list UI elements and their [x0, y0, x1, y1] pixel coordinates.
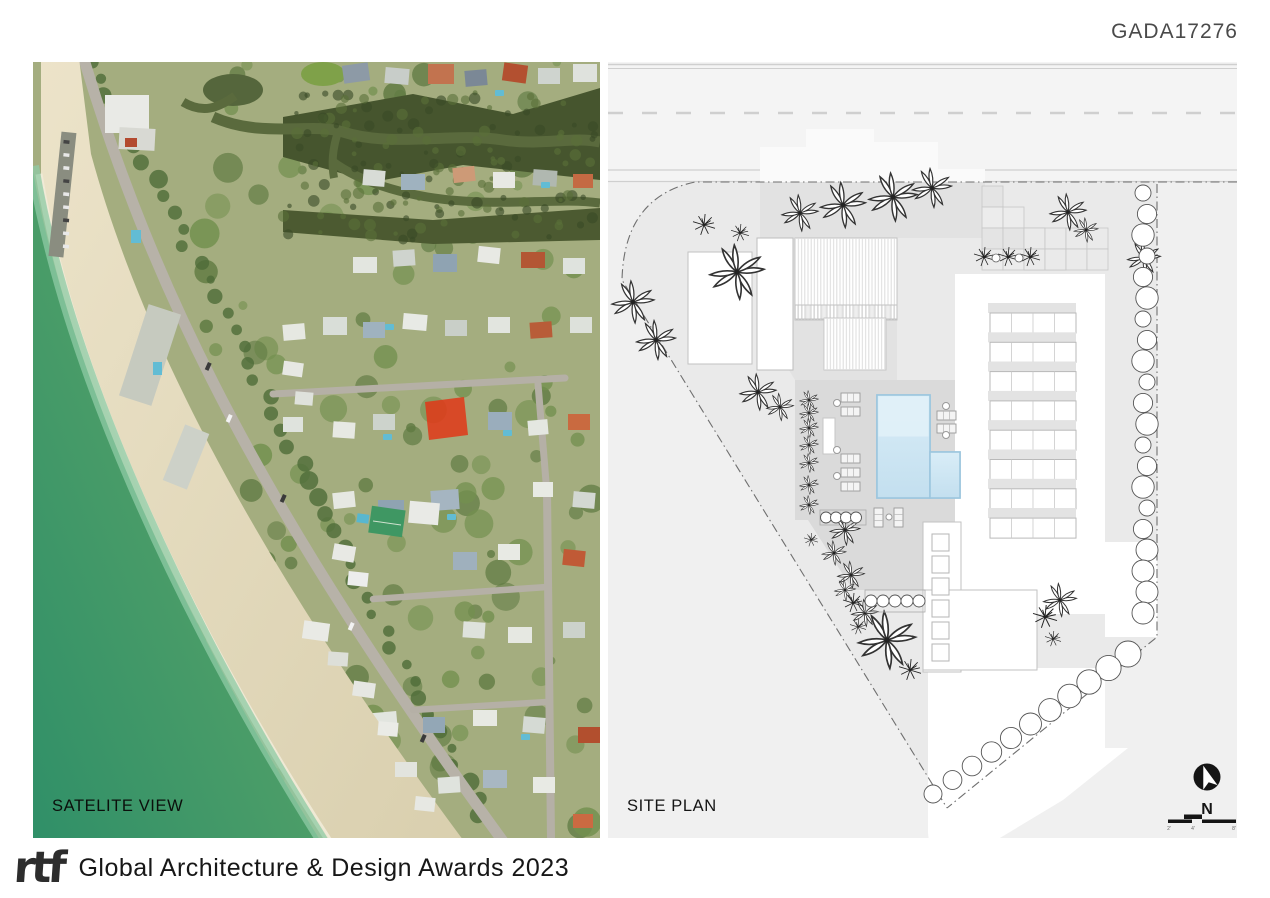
house-roof — [493, 172, 515, 188]
beachfront-building — [105, 95, 149, 133]
car — [63, 218, 69, 222]
unit-square — [932, 534, 949, 551]
building-deck-hatch — [795, 305, 897, 319]
house-roof — [323, 317, 347, 335]
unit-square — [932, 600, 949, 617]
bush — [943, 771, 962, 790]
beachfront-building — [294, 391, 313, 406]
rtf-logo: rtf — [12, 847, 63, 890]
house-roof — [402, 313, 427, 331]
lounge-chair — [937, 411, 956, 420]
carport-shadow — [988, 420, 1076, 430]
house-roof — [522, 716, 545, 734]
unit-square — [932, 556, 949, 573]
bush — [1137, 456, 1156, 475]
beachfront-building — [414, 796, 435, 812]
backyard-pool — [385, 324, 394, 330]
house-roof — [488, 317, 510, 333]
house-roof — [282, 323, 305, 341]
bush — [1137, 204, 1156, 223]
carport-shadow — [988, 362, 1076, 372]
presentation-board: GADA17276 — [0, 0, 1270, 898]
house-roof — [521, 252, 545, 268]
site-plan-panel: N 2' 4' 8' SITE PLAN — [608, 62, 1237, 838]
unit-square — [932, 578, 949, 595]
site-plan-label: SITE PLAN — [627, 797, 717, 816]
backyard-pool — [541, 182, 550, 188]
motel-pool — [131, 230, 141, 243]
bush — [1139, 374, 1155, 390]
house-roof — [538, 68, 560, 84]
house-roof — [332, 421, 355, 438]
bush — [1136, 287, 1158, 309]
house-roof — [563, 622, 585, 638]
carport-shadow — [988, 508, 1076, 518]
beachfront-building — [377, 721, 398, 737]
bush — [1135, 311, 1151, 327]
house-roof — [401, 174, 425, 190]
beachfront-building — [347, 571, 368, 587]
house-roof — [363, 322, 385, 338]
building-tower — [757, 238, 793, 370]
backyard-pool — [447, 514, 456, 520]
house-roof — [477, 246, 501, 264]
bush — [1132, 476, 1154, 498]
house-roof — [423, 717, 445, 733]
car — [63, 140, 69, 144]
beachfront-building — [125, 138, 137, 147]
bush — [1132, 602, 1154, 624]
house-roof — [527, 419, 548, 436]
lounge-chair — [841, 468, 860, 477]
house-roof — [573, 814, 593, 828]
beachfront-building — [282, 361, 304, 378]
house-roof — [283, 417, 303, 432]
house-roof — [452, 166, 475, 183]
house-roof — [453, 552, 477, 570]
parking-rows — [988, 303, 1076, 538]
satellite-view-panel: SATELITE VIEW — [33, 62, 600, 838]
bush — [1000, 727, 1021, 748]
house-roof — [392, 249, 415, 266]
house-roof — [568, 414, 590, 430]
bush — [865, 595, 877, 607]
beachfront-building — [328, 651, 349, 666]
bush — [1132, 224, 1154, 246]
house-roof — [563, 258, 585, 274]
carport-shadow — [988, 332, 1076, 342]
bush — [1132, 560, 1154, 582]
house-roof — [433, 254, 457, 272]
bush — [1039, 699, 1062, 722]
site-plan-drawing: N 2' 4' 8' — [608, 62, 1237, 838]
beachfront-building — [352, 681, 376, 699]
car — [63, 166, 69, 170]
house-roof — [533, 482, 553, 497]
carport-shadow — [988, 479, 1076, 489]
house-roof — [437, 776, 460, 793]
lounge-chair — [841, 393, 860, 402]
house-roof — [533, 777, 555, 793]
scale-tick: 4' — [1191, 826, 1195, 832]
awards-title: Global Architecture & Design Awards 2023 — [78, 854, 569, 883]
lounge-chair — [841, 454, 860, 463]
satellite-view-label: SATELITE VIEW — [52, 797, 183, 816]
house-roof — [428, 64, 454, 84]
backyard-pool — [495, 90, 504, 96]
bush — [1020, 713, 1042, 735]
bush — [1133, 393, 1152, 412]
house-roof — [508, 627, 532, 643]
backyard-pool — [383, 434, 392, 440]
house-roof — [464, 69, 487, 87]
cabana — [823, 418, 835, 454]
carport-shadow — [988, 450, 1076, 460]
car — [63, 205, 69, 209]
lounge-chair — [894, 508, 903, 527]
lounge-chair — [874, 508, 883, 527]
car — [63, 179, 69, 183]
carport-shadow — [988, 391, 1076, 401]
house-roof — [384, 67, 409, 85]
bush — [831, 512, 842, 523]
scale-tick: 2' — [1167, 826, 1171, 832]
house-roof — [498, 544, 520, 560]
bush — [1133, 267, 1152, 286]
backyard-pool — [521, 734, 530, 740]
house-roof — [362, 169, 385, 187]
bush — [924, 785, 942, 803]
house-roof — [570, 317, 592, 333]
bush — [877, 595, 889, 607]
bush — [841, 512, 852, 523]
house-roof — [483, 770, 507, 788]
tennis-court — [368, 506, 405, 537]
footer: rtf Global Architecture & Design Awards … — [14, 841, 569, 895]
bush — [913, 595, 925, 607]
bush — [851, 512, 862, 523]
house-roof — [332, 491, 356, 509]
house-roof — [445, 320, 467, 336]
site-highlight-parcel — [425, 397, 468, 440]
unit-square — [932, 622, 949, 639]
house-roof — [342, 62, 370, 83]
house-roof — [373, 414, 395, 430]
house-roof — [462, 621, 485, 638]
carport-shadow — [988, 303, 1076, 313]
bush — [821, 512, 832, 523]
bush — [1135, 437, 1151, 453]
bush — [889, 595, 901, 607]
bush — [1136, 581, 1158, 603]
backyard-pool — [503, 430, 512, 436]
house-roof — [529, 321, 552, 338]
unit-square — [932, 644, 949, 661]
bush — [1132, 350, 1154, 372]
bush — [1139, 500, 1155, 516]
beachfront-building — [408, 501, 440, 526]
club-pool — [356, 513, 369, 524]
house-roof — [488, 412, 512, 430]
bush — [1137, 330, 1156, 349]
car — [63, 153, 69, 157]
satellite-image — [33, 62, 600, 838]
scale-tick: 8' — [1232, 826, 1236, 832]
house-roof — [353, 257, 377, 273]
house-roof — [572, 491, 595, 509]
car — [63, 192, 69, 196]
bush — [901, 595, 913, 607]
north-label: N — [1201, 801, 1213, 818]
house-roof — [473, 710, 497, 726]
submission-code: GADA17276 — [1111, 20, 1238, 44]
bush — [962, 756, 982, 776]
house-roof — [502, 62, 528, 83]
bush — [1136, 413, 1158, 435]
car — [63, 231, 69, 235]
car — [63, 244, 69, 248]
house-roof — [578, 727, 600, 743]
bush — [1135, 185, 1151, 201]
bush — [1133, 519, 1152, 538]
lounge-chair — [841, 407, 860, 416]
house-roof — [562, 549, 586, 567]
beachfront-building — [302, 620, 330, 641]
bush — [1139, 248, 1155, 264]
bush — [1058, 684, 1082, 708]
house-roof — [573, 64, 597, 82]
bush — [1136, 539, 1158, 561]
lounge-chair — [841, 482, 860, 491]
house-roof — [573, 174, 593, 188]
bush — [981, 742, 1001, 762]
beachfront-building — [395, 762, 417, 777]
